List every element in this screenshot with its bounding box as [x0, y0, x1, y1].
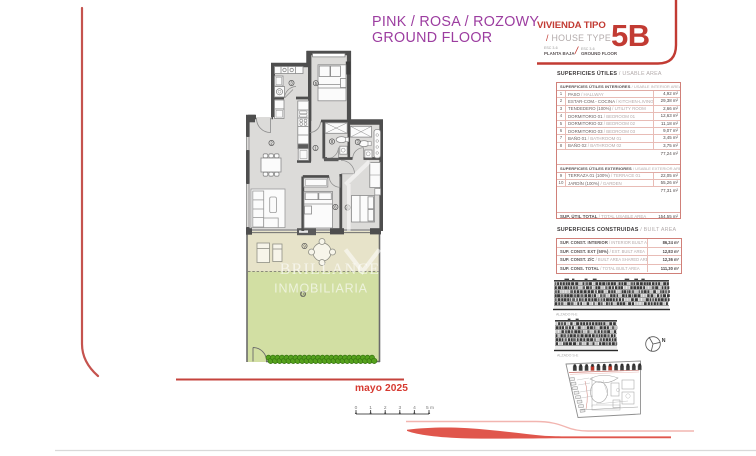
svg-text:ALZADO N-E: ALZADO N-E	[556, 313, 578, 317]
svg-text:INMOBILIARIA: INMOBILIARIA	[274, 282, 368, 296]
svg-text:BRILLANCE: BRILLANCE	[280, 261, 381, 278]
svg-text:ALZADO S-E: ALZADO S-E	[557, 354, 579, 358]
